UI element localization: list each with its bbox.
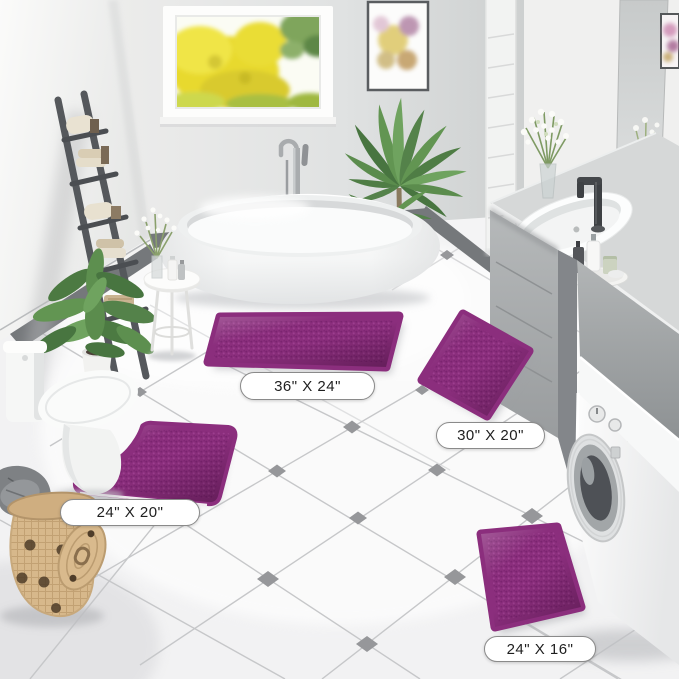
bathroom-scene: 36" X 24" 30" X 20" 24" X 20" 24" X 16"	[0, 0, 679, 679]
bathroom-illustration	[0, 0, 679, 679]
wall-art	[368, 2, 428, 90]
mirror-edge-art	[661, 14, 679, 68]
bath-mat-36x24	[208, 316, 404, 374]
size-label-24x16: 24" X 16"	[484, 636, 596, 662]
size-label-30x20: 30" X 20"	[436, 422, 545, 449]
window-sill	[160, 117, 336, 124]
size-label-36x24: 36" X 24"	[240, 372, 375, 400]
window	[160, 6, 336, 127]
size-label-24x20: 24" X 20"	[60, 499, 200, 526]
